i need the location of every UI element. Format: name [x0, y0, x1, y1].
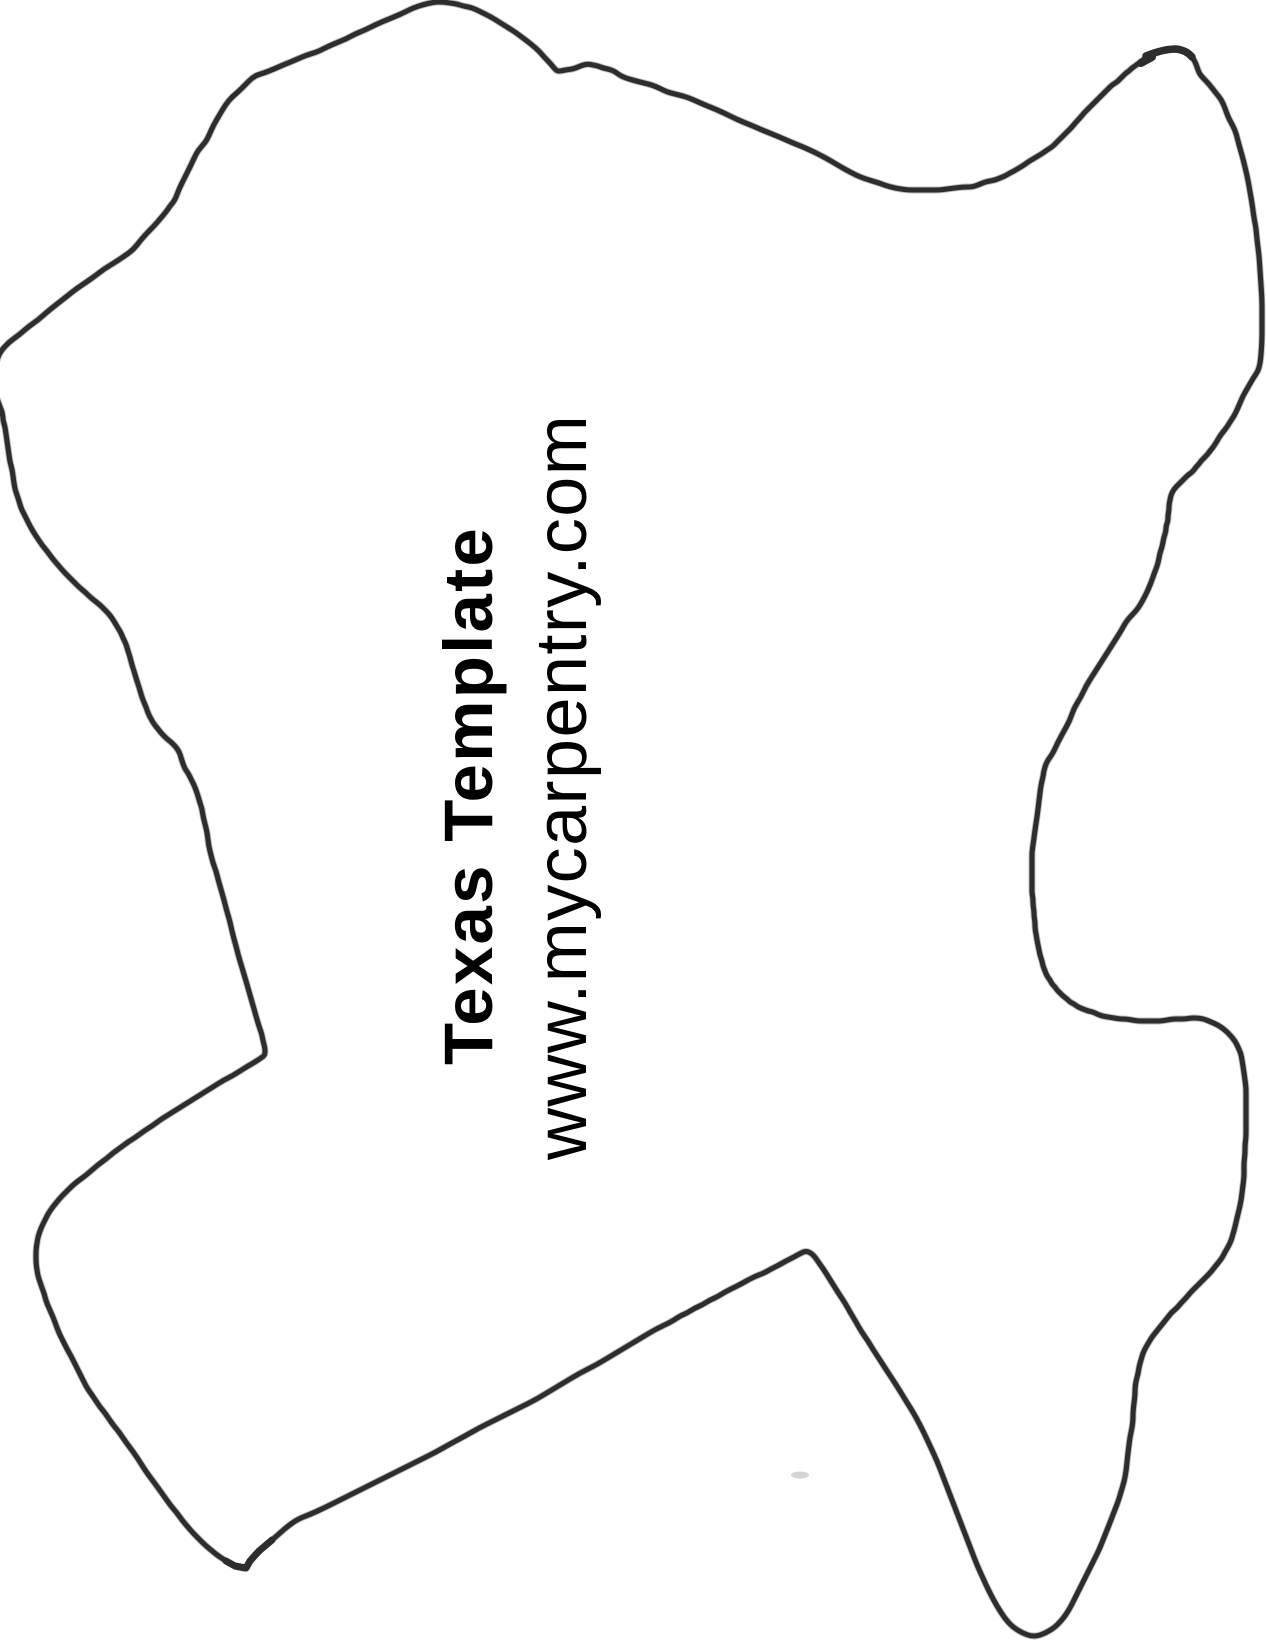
svg-text:Texas Template: Texas Template — [430, 526, 507, 1065]
svg-text:www.mycarpentry.com: www.mycarpentry.com — [522, 414, 602, 1161]
